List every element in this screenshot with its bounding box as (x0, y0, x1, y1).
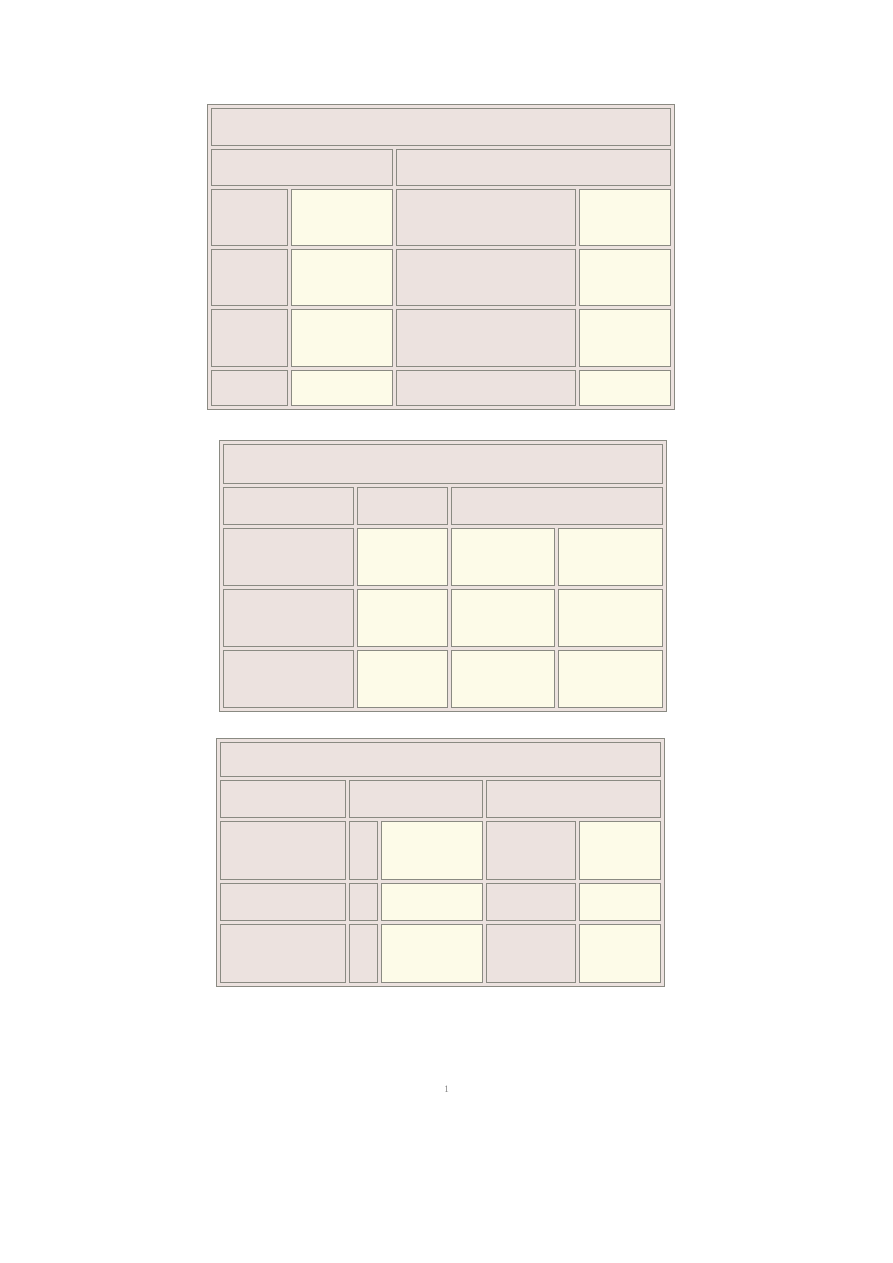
table-cell (381, 924, 483, 983)
table-cell (357, 650, 448, 708)
table-cell (396, 249, 576, 306)
form-table-2-row-3 (223, 528, 663, 586)
table-cell (223, 650, 354, 708)
table-cell (291, 249, 393, 306)
table-cell (579, 370, 671, 406)
form-table-1 (207, 104, 675, 410)
form-table-1-row-6 (211, 370, 671, 406)
form-table-1-row-2 (211, 149, 671, 186)
table-cell (558, 589, 663, 647)
table-cell (291, 189, 393, 246)
form-table-3-row-3 (220, 821, 661, 880)
document-page: 1 (0, 0, 893, 1263)
form-table-3 (216, 738, 665, 987)
table-cell (486, 883, 576, 921)
table-cell (381, 883, 483, 921)
table-cell (579, 309, 671, 367)
form-table-3-row-4 (220, 883, 661, 921)
form-table-3-row-1 (220, 742, 661, 777)
table-cell (349, 883, 378, 921)
page-number: 1 (0, 1083, 893, 1095)
table-cell (220, 883, 346, 921)
form-table-1-row-4 (211, 249, 671, 306)
table-cell (579, 189, 671, 246)
table-cell (211, 249, 288, 306)
table-cell (211, 108, 671, 146)
table-cell (220, 924, 346, 983)
table-cell (223, 528, 354, 586)
table-cell (579, 821, 661, 880)
table-cell (220, 821, 346, 880)
table-cell (211, 370, 288, 406)
table-cell (220, 742, 661, 777)
form-table-2 (219, 440, 667, 712)
form-table-2-row-5 (223, 650, 663, 708)
form-table-1-row-1 (211, 108, 671, 146)
table-cell (211, 309, 288, 367)
form-table-1-row-3 (211, 189, 671, 246)
table-cell (349, 780, 483, 818)
table-cell (558, 650, 663, 708)
table-cell (579, 924, 661, 983)
table-cell (396, 370, 576, 406)
table-cell (579, 883, 661, 921)
table-cell (396, 149, 671, 186)
table-cell (357, 589, 448, 647)
table-cell (486, 821, 576, 880)
table-cell (396, 189, 576, 246)
form-table-3-row-2 (220, 780, 661, 818)
table-cell (451, 487, 663, 525)
table-cell (451, 650, 555, 708)
form-table-2-row-1 (223, 444, 663, 484)
table-cell (357, 528, 448, 586)
table-cell (558, 528, 663, 586)
table-cell (291, 370, 393, 406)
table-cell (211, 149, 393, 186)
table-cell (486, 924, 576, 983)
table-cell (579, 249, 671, 306)
table-cell (291, 309, 393, 367)
table-cell (349, 821, 378, 880)
table-cell (381, 821, 483, 880)
form-table-2-row-2 (223, 487, 663, 525)
table-cell (349, 924, 378, 983)
table-cell (211, 189, 288, 246)
table-cell (220, 780, 346, 818)
form-table-1-row-5 (211, 309, 671, 367)
form-table-3-row-5 (220, 924, 661, 983)
table-cell (451, 528, 555, 586)
form-table-2-row-4 (223, 589, 663, 647)
table-cell (223, 589, 354, 647)
table-cell (357, 487, 448, 525)
table-cell (486, 780, 661, 818)
table-cell (223, 444, 663, 484)
table-cell (451, 589, 555, 647)
table-cell (396, 309, 576, 367)
table-cell (223, 487, 354, 525)
